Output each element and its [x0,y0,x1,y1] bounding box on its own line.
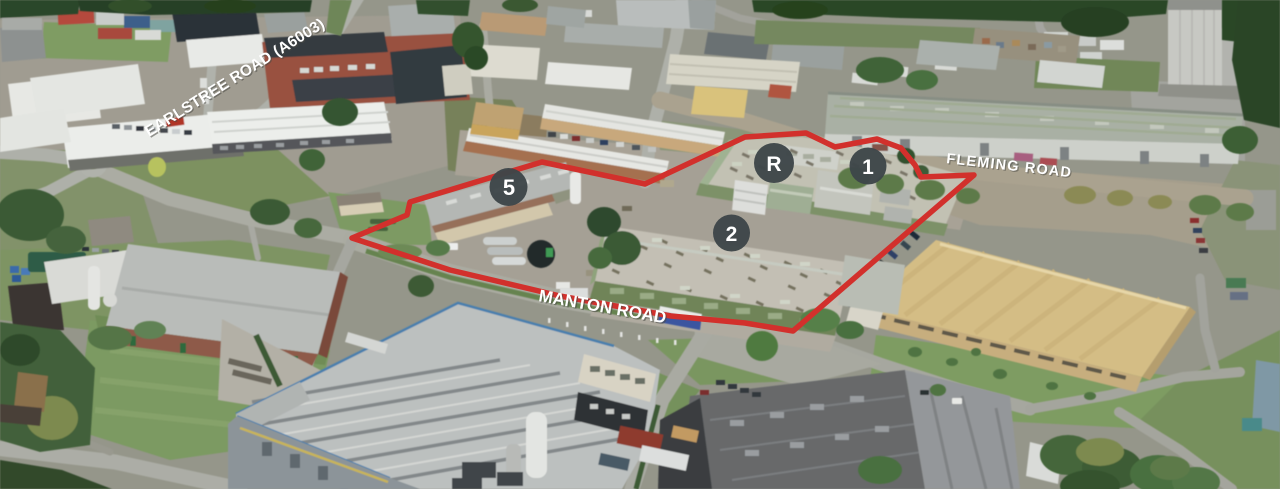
svg-text:5: 5 [503,175,515,200]
svg-text:2: 2 [726,223,738,246]
svg-text:1: 1 [862,156,874,179]
svg-text:R: R [766,153,781,176]
